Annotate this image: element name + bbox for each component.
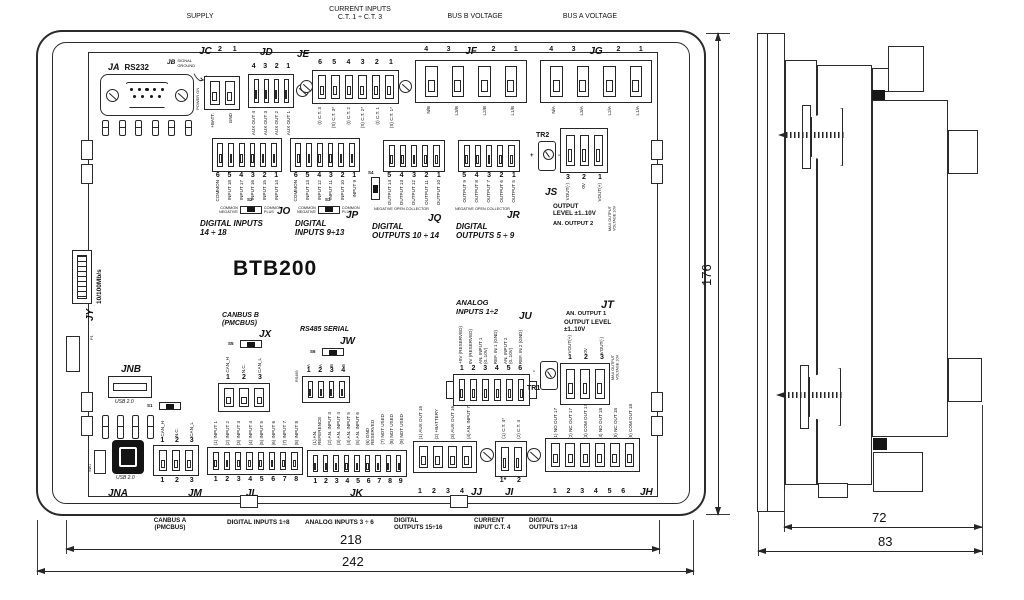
caption-digital-outputs-17-18: DIGITAL OUTPUTS 17÷18 <box>529 517 587 531</box>
pin <box>172 450 180 471</box>
jd-pin-number: 4 <box>248 63 260 71</box>
connector-jo-caption: DIGITAL INPUTS 14 ÷ 18 <box>200 219 288 237</box>
pin <box>630 66 643 96</box>
jd-pin-label: AUX OUT 1 <box>286 111 291 135</box>
connector-ja-label: JA RS232 <box>108 62 149 72</box>
connector-jo-block <box>212 138 282 172</box>
jp-pin-label: COMMON <box>293 180 298 201</box>
jy-aux-connector <box>66 336 80 372</box>
connector-jq-block <box>383 140 445 172</box>
jg-pin-number: 1 <box>630 46 652 56</box>
jk-pin-label: (4) AN. INPUT 5 <box>346 412 351 445</box>
pin <box>158 95 161 98</box>
switch-s1 <box>159 402 181 410</box>
je-pin-number: 6 <box>313 59 327 67</box>
mount-clamp-1-screw-tip <box>778 132 787 138</box>
je-pin-label: (S) C.T. 2* <box>360 107 365 128</box>
je-pin-label: (S) C.T. 1* <box>389 107 394 128</box>
jl-pin-label: (6) INPUT 6 <box>271 421 276 445</box>
ju-pin-label: 0V (RESERVED) <box>468 329 473 364</box>
connector-jk-id: JK <box>350 488 363 500</box>
jf-pin-number: 4 <box>415 46 437 56</box>
jg-pin-number: 2 <box>607 46 629 56</box>
switch-s2 <box>240 206 262 214</box>
pin <box>419 446 429 468</box>
pin <box>594 135 603 167</box>
pin <box>269 452 275 471</box>
jp-pin-number: 6 <box>290 172 302 180</box>
jm-pin-number: 2 <box>170 437 185 444</box>
jt-pin-number: 2 <box>578 354 594 362</box>
jr-pin-label: OUTPUT 8 <box>474 180 479 203</box>
pin <box>254 388 264 407</box>
jq-pin-label: OUTPUT 10 <box>436 180 441 205</box>
dimension-72-label: 72 <box>872 511 886 526</box>
jk-pin-number: 3 <box>331 478 342 485</box>
pin <box>308 381 314 399</box>
jg-pin-label: L3/A <box>579 106 584 115</box>
pin <box>280 452 286 471</box>
top-label-bus-b-voltage: BUS B VOLTAGE <box>423 13 527 21</box>
jl-pin-label: (8) INPUT 8 <box>294 421 299 445</box>
jh-pin-label: (2) NC OUT 17 <box>568 408 573 439</box>
pin <box>339 381 345 399</box>
jw-rs485-side-note: RS485 <box>295 360 299 382</box>
jo-pin-label: INPUT 17 <box>239 180 244 200</box>
pin <box>271 143 277 166</box>
tr2-plus-sign: + <box>530 153 534 160</box>
pin <box>250 143 256 166</box>
pin <box>328 143 334 166</box>
pin <box>396 455 401 473</box>
jt-max-output-note: MAX OUTPUT VOLTAGE 10V <box>611 330 620 380</box>
pin <box>372 75 381 98</box>
pin <box>462 446 472 468</box>
dimension-line-242 <box>37 571 694 572</box>
jk-pin-numbers: 123456789 <box>310 478 406 485</box>
connector-js-block <box>560 128 608 173</box>
jm-pin-labels: CAN_HN.C.CAN_L <box>155 413 199 437</box>
jx-pin-number: 2 <box>236 374 252 382</box>
jf-pin-labels: N/BL3/BL2/BL1/B <box>415 106 527 128</box>
jw-pin-number: 4 <box>338 367 350 375</box>
mount-clip <box>651 416 663 436</box>
jo-pin-label: INPUT 15 <box>262 180 267 200</box>
switch-s2-left-label: COMMON NEGATIVE <box>219 206 238 214</box>
caption-digital-outputs-15-16: DIGITAL OUTPUTS 15÷16 <box>394 517 452 531</box>
jg-pin-number: 3 <box>562 46 584 56</box>
je-pin-labels: (I) C.T. 3(S) C.T. 3*(I) C.T. 2(S) C.T. … <box>312 107 399 137</box>
connector-jm-block <box>153 445 199 476</box>
connector-jd-block <box>248 74 294 108</box>
jk-pin-label: (1) AN. REFERENCE <box>312 409 322 445</box>
pin <box>225 81 235 104</box>
js-an-output2-caption: AN. OUTPUT 2 <box>553 221 605 228</box>
pin <box>132 415 139 439</box>
je-pin-label: (S) C.T. 3* <box>331 107 336 128</box>
jp-pin-numbers: 654321 <box>290 172 360 180</box>
connector-jb-id: JB <box>167 59 175 68</box>
connector-jna-id: JNA <box>108 488 128 500</box>
pin <box>168 120 175 136</box>
jm-pin-label: N.C. <box>174 428 179 437</box>
mount-clip <box>450 495 468 508</box>
mount-clip <box>651 140 663 160</box>
connector-jf-header: 4 3 JF 2 1 <box>415 46 527 56</box>
pin <box>505 66 518 96</box>
pin <box>258 452 264 471</box>
pin <box>603 66 616 96</box>
jd-pin-label: AUX OUT 3 <box>263 111 268 135</box>
js-pin-number: 1 <box>592 174 608 182</box>
connector-jp-caption: DIGITAL INPUTS 9÷13 <box>295 219 365 237</box>
db9-pin-row-bottom <box>133 95 161 99</box>
db9-pin-row-top <box>130 88 164 92</box>
jo-pin-label: INPUT 14 <box>274 180 279 200</box>
connector-jl-block <box>207 447 303 475</box>
jt-pin-label: VOUT(-) <box>599 337 604 354</box>
connector-jr-block <box>458 140 520 172</box>
jx-pin-label: CAN_L <box>257 358 262 373</box>
pin <box>317 143 323 166</box>
pin <box>224 388 234 407</box>
jp-pin-number: 4 <box>313 172 325 180</box>
pin <box>580 443 590 466</box>
jq-pin-labels: OUTPUT 14OUTPUT 13OUTPUT 12OUTPUT 11OUTP… <box>383 180 445 206</box>
je-pin-number: 2 <box>370 59 384 67</box>
jl-pin-label: (5) INPUT 5 <box>259 421 264 445</box>
connector-jl-id: JL <box>246 488 258 500</box>
switch-s3-left-label: COMMON NEGATIVE <box>297 206 316 214</box>
jh-pin-label: (5) NC OUT 18 <box>613 408 618 439</box>
ji-pin-number: 2 <box>511 477 527 485</box>
side-view-black-block-top <box>872 90 885 100</box>
side-view-right-connector-upper <box>948 130 978 174</box>
pin <box>386 455 391 473</box>
pin <box>210 81 220 104</box>
jk-pin-number: 8 <box>385 478 396 485</box>
dimension-line-218 <box>66 549 660 550</box>
pin <box>138 88 141 91</box>
pin <box>260 143 266 166</box>
jr-pin-label: OUTPUT 6 <box>499 180 504 203</box>
pin <box>338 143 344 166</box>
pin <box>470 379 477 401</box>
jo-pin-number: 1 <box>270 172 282 180</box>
jc-pin-label: +BATT. <box>210 113 215 128</box>
connector-jg-header: 4 3 JG 2 1 <box>540 46 652 56</box>
je-pin-label: (I) C.T. 1 <box>375 107 380 125</box>
pin <box>102 415 109 439</box>
jl-pin-number: 4 <box>245 476 257 483</box>
db9-connector-shell <box>100 74 194 116</box>
pin <box>228 143 234 166</box>
pin <box>595 369 605 398</box>
js-pin-number: 3 <box>560 174 576 182</box>
connector-jc-id: JC <box>198 46 213 56</box>
jx-canbus-b-title: CANBUS B (PMCBUS) <box>222 312 278 328</box>
js-max-output-note: MAX OUTPUT VOLTAGE 10V <box>608 183 617 231</box>
pin <box>254 79 259 102</box>
mount-clamp-2-screw <box>784 392 844 398</box>
jw-pin-labels: AABB <box>303 358 349 367</box>
pin <box>422 145 428 167</box>
jo-pin-number: 4 <box>235 172 247 180</box>
jm-pin-number: 1 <box>155 477 170 484</box>
jc-pin-number: 1 <box>227 46 242 56</box>
jp-pin-label: INPUT 10 <box>340 180 345 200</box>
pin <box>433 446 443 468</box>
connector-jc-block <box>204 76 240 110</box>
jd-pin-number: 1 <box>283 63 295 71</box>
jf-pin-label: L1/B <box>510 106 515 115</box>
jo-pin-numbers: 654321 <box>212 172 282 180</box>
jf-pin-label: L2/B <box>482 106 487 115</box>
mount-clamp-1-screw <box>786 132 846 138</box>
jx-pin-labels: CAN_HN.C.CAN_L <box>220 352 268 373</box>
jo-pin-number: 2 <box>259 172 271 180</box>
connector-js-id: JS <box>545 187 557 199</box>
mount-clip <box>81 416 93 436</box>
switch-s3-name: S3 <box>325 197 331 202</box>
side-view-right-connector-lower <box>948 358 982 402</box>
js-output-level-caption: OUTPUT LEVEL ±1..10V <box>553 203 609 217</box>
mount-clip <box>81 392 93 412</box>
jnb-usb-label: USB 2.0 <box>115 400 134 406</box>
jx-pin-number: 1 <box>220 374 236 382</box>
ju-pin-labels: +5V (RESERVED)0V (RESERVED)AN. INPUT 1 (… <box>456 320 526 364</box>
pin <box>291 452 297 471</box>
jg-pin-label: N/A <box>551 106 556 114</box>
side-view-black-block-bottom <box>873 438 887 450</box>
jw-pin-number: 1 <box>303 367 315 375</box>
jw-pin-number: 3 <box>326 367 338 375</box>
pin <box>153 88 156 91</box>
pin <box>365 455 370 473</box>
jd-pin-number: 2 <box>271 63 283 71</box>
switch-s2-name: S2 <box>247 197 253 202</box>
pin <box>459 379 466 401</box>
jl-pin-number: 3 <box>233 476 245 483</box>
side-view-top-joint <box>872 68 889 92</box>
mount-clip <box>651 164 663 184</box>
jl-pin-numbers: 12345678 <box>210 476 302 483</box>
pin <box>213 452 219 471</box>
ju-pin-label: AN. INPUT 1 (0..10V) <box>478 320 488 364</box>
jm-pin-number: 2 <box>170 477 185 484</box>
jl-pin-label: (2) INPUT 2 <box>225 421 230 445</box>
trimmer-tr1 <box>540 361 558 390</box>
jq-pin-number: 1 <box>433 172 445 180</box>
jt-pin-numbers: 123 <box>562 354 610 362</box>
switch-s5-name: S5 <box>228 341 234 346</box>
jh-pin-number: 6 <box>616 488 630 496</box>
jx-pin-number: 3 <box>252 374 268 382</box>
pin <box>411 145 417 167</box>
dim-242-ext-left <box>37 520 38 575</box>
pin <box>318 75 327 98</box>
pin <box>385 75 394 98</box>
jk-pin-label: (8) NOT USED <box>389 414 394 445</box>
jm-pin-number: 3 <box>184 477 199 484</box>
pin <box>501 447 509 472</box>
jo-pin-number: 6 <box>212 172 224 180</box>
ju-pin-label: REF. IN 2 (GND) <box>518 330 523 364</box>
jf-pin-number: 3 <box>437 46 459 56</box>
pin <box>577 66 590 96</box>
connector-jt-id: JT <box>601 299 614 312</box>
jc-power-on-note: POWER ON <box>196 78 201 110</box>
pin <box>400 145 406 167</box>
jq-pin-label: OUTPUT 12 <box>411 180 416 205</box>
pin <box>329 381 335 399</box>
pin <box>141 95 144 98</box>
side-view-bezel <box>757 33 785 512</box>
dimension-line-83 <box>758 551 982 552</box>
pin <box>448 446 458 468</box>
pin <box>246 452 252 471</box>
jr-pin-label: OUTPUT 5 <box>511 180 516 203</box>
jp-pin-number: 5 <box>302 172 314 180</box>
mount-clamp-2-screw-tip <box>776 392 785 398</box>
connector-ja-type: RS232 <box>125 63 149 72</box>
pin <box>358 75 367 98</box>
pin <box>514 447 522 472</box>
pin <box>159 450 167 471</box>
pin <box>580 135 589 167</box>
jt-an-output1-caption: AN. OUTPUT 1 <box>566 311 610 318</box>
connector-jw-id: JW <box>340 336 355 348</box>
pin <box>482 379 489 401</box>
jm-pin-numbers-top: 123 <box>155 437 199 444</box>
jj-pin-label: (1) AUX OUT 15 <box>418 406 423 439</box>
jk-pin-number: 9 <box>395 478 406 485</box>
connector-ji-id: JI <box>505 487 513 499</box>
jr-pin-label: OUTPUT 9 <box>462 180 467 203</box>
jh-pin-label: (3) COM OUT 17 <box>583 404 588 439</box>
jq-pin-number: 4 <box>395 172 407 180</box>
pin <box>117 415 124 439</box>
mount-clip <box>81 164 93 184</box>
jx-pin-label: N.C. <box>241 364 246 373</box>
pin <box>135 120 142 136</box>
tr1-minus-sign: - <box>533 369 535 376</box>
switch-s3 <box>318 206 340 214</box>
jh-pin-label: (1) NO OUT 17 <box>553 408 558 439</box>
je-pin-number: 4 <box>341 59 355 67</box>
js-pin-numbers: 321 <box>560 174 608 182</box>
jh-pin-number: 3 <box>575 488 589 496</box>
js-pin-number: 2 <box>576 174 592 182</box>
jo-pin-label: COMMON <box>215 180 220 201</box>
pin <box>284 79 289 102</box>
pin <box>610 443 620 466</box>
connector-jt-block <box>560 363 610 405</box>
ethernet-port-jy <box>72 250 92 304</box>
jq-pin-label: OUTPUT 11 <box>424 180 429 205</box>
ji-pin-label: (2) C.T. 4 <box>516 420 521 439</box>
jk-pin-label: (2) AN. INPUT 3 <box>327 412 332 445</box>
jk-pin-number: 6 <box>363 478 374 485</box>
jl-pin-number: 2 <box>222 476 234 483</box>
jt-pin-number: 1 <box>562 354 578 362</box>
jc-pin-labels: +BATT.GND <box>204 113 240 141</box>
jk-pin-number: 1 <box>310 478 321 485</box>
pin <box>239 143 245 166</box>
jq-pin-number: 5 <box>383 172 395 180</box>
jl-pin-number: 6 <box>268 476 280 483</box>
jp-pin-label: INPUT 13 <box>305 180 310 200</box>
jp-pin-label: INPUT 9 <box>352 180 357 198</box>
jr-pin-label: OUTPUT 7 <box>486 180 491 203</box>
ju-analog-inputs-title: ANALOG INPUTS 1÷2 <box>456 299 518 316</box>
jk-pin-label: (6) GND RESERVED <box>365 409 375 445</box>
jw-pin-numbers: 1234 <box>303 367 349 375</box>
connector-jh-id: JH <box>640 487 653 499</box>
jh-pin-label: (4) NO OUT 18 <box>598 408 603 439</box>
pin <box>452 66 465 96</box>
dim-242-ext-right <box>693 520 694 575</box>
jl-pin-number: 7 <box>279 476 291 483</box>
jj-pin-label: (2) +BATTERY <box>434 409 439 439</box>
dimension-83-label: 83 <box>878 535 892 550</box>
ju-pin-number: 3 <box>479 365 491 373</box>
switch-s4-name: S4 <box>368 170 374 175</box>
pin <box>264 79 269 102</box>
connector-jq-caption: DIGITAL OUTPUTS 10 ÷ 14 <box>372 222 440 240</box>
ji-screw-right <box>527 448 541 462</box>
pin <box>313 455 318 473</box>
ju-pin-numbers: 123456 <box>456 365 526 373</box>
pin <box>306 143 312 166</box>
jj-pin-numbers: 1234 <box>413 488 469 496</box>
jd-pin-label: AUX OUT 2 <box>274 111 279 135</box>
jnb-jumper-pin-row <box>102 415 154 437</box>
caption-analog-inputs-3-6: ANALOG INPUTS 3 ÷ 6 <box>305 519 383 526</box>
top-label-bus-a-voltage: BUS A VOLTAGE <box>538 13 642 21</box>
pin <box>331 75 340 98</box>
jk-pin-label: (5) AN. INPUT 6 <box>355 412 360 445</box>
caption-current-input-ct4: CURRENT INPUT C.T. 4 <box>474 517 524 531</box>
switch-s5 <box>240 340 262 348</box>
side-view-bottom-notch <box>818 483 848 498</box>
jq-pin-label: OUTPUT 14 <box>387 180 392 205</box>
jl-pin-labels: (1) INPUT 1(2) INPUT 2(3) INPUT 3(4) INP… <box>210 417 302 445</box>
connector-jd-id: JD <box>260 47 273 59</box>
jk-pin-number: 5 <box>353 478 364 485</box>
jj-pin-label: (4) AN. INPUT 7 <box>466 406 471 439</box>
ju-pin-label: REF. IN 1 (GND) <box>493 330 498 364</box>
jh-pin-number: 2 <box>562 488 576 496</box>
jw-pin-number: 2 <box>315 367 327 375</box>
pin <box>345 75 354 98</box>
jw-rs485-title: RS485 SERIAL <box>300 326 360 334</box>
connector-jf-block <box>415 60 527 103</box>
usb-b-port-jna <box>112 440 144 474</box>
jr-pin-labels: OUTPUT 9OUTPUT 8OUTPUT 7OUTPUT 6OUTPUT 5 <box>458 180 520 206</box>
connector-jb-text: SIGNAL GROUND <box>177 59 195 68</box>
jp-pin-label: INPUT 12 <box>317 180 322 200</box>
pin <box>274 79 279 102</box>
sw1-connector <box>94 450 106 474</box>
top-label-current-inputs: CURRENT INPUTS C.T. 1 ÷ C.T. 3 <box>308 6 412 22</box>
jl-pin-label: (3) INPUT 3 <box>236 421 241 445</box>
jg-pin-number: 4 <box>540 46 562 56</box>
jm-pin-number: 3 <box>184 437 199 444</box>
pin <box>551 443 561 466</box>
side-view-bezel-line <box>767 34 768 511</box>
je-pin-number: 1 <box>384 59 398 67</box>
